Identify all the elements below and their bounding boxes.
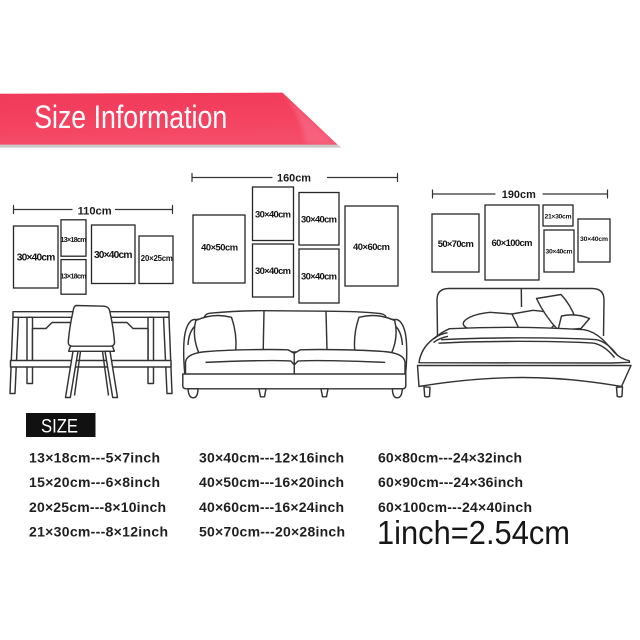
svg-text:30×40cm: 30×40cm [255, 209, 291, 220]
svg-text:30×40cm: 30×40cm [301, 213, 337, 224]
svg-text:13×18cm: 13×18cm [61, 274, 87, 281]
svg-text:40×50cm---16×20inch: 40×50cm---16×20inch [199, 474, 344, 490]
svg-text:SIZE: SIZE [41, 416, 78, 438]
svg-text:190cm: 190cm [502, 189, 536, 201]
svg-text:30×40cm: 30×40cm [17, 253, 56, 264]
svg-text:60×90cm---24×36inch: 60×90cm---24×36inch [378, 474, 523, 490]
svg-text:30×40cm: 30×40cm [546, 249, 573, 256]
svg-text:40×60cm---16×24inch: 40×60cm---16×24inch [199, 499, 344, 515]
svg-text:13×18cm---5×7inch: 13×18cm---5×7inch [29, 450, 160, 466]
svg-text:160cm: 160cm [277, 173, 311, 185]
svg-text:30×40cm: 30×40cm [580, 236, 608, 243]
svg-text:60×100cm: 60×100cm [492, 237, 533, 248]
svg-text:20×25cm---8×10inch: 20×25cm---8×10inch [29, 499, 166, 515]
svg-text:20×25cm: 20×25cm [141, 254, 173, 263]
svg-text:21×30cm: 21×30cm [545, 214, 572, 221]
svg-text:60×80cm---24×32inch: 60×80cm---24×32inch [378, 450, 522, 466]
svg-text:15×20cm---6×8inch: 15×20cm---6×8inch [29, 474, 160, 490]
svg-text:60×100cm---24×40inch: 60×100cm---24×40inch [378, 499, 532, 515]
svg-text:30×40cm: 30×40cm [94, 250, 133, 261]
svg-text:21×30cm---8×12inch: 21×30cm---8×12inch [29, 523, 168, 539]
svg-text:40×60cm: 40×60cm [353, 241, 390, 252]
svg-text:50×70cm---20×28inch: 50×70cm---20×28inch [199, 523, 345, 539]
svg-text:1inch=2.54cm: 1inch=2.54cm [377, 514, 570, 551]
svg-text:40×50cm: 40×50cm [201, 241, 238, 252]
svg-text:13×18cm: 13×18cm [61, 237, 87, 244]
svg-text:110cm: 110cm [78, 206, 112, 218]
svg-text:50×70cm: 50×70cm [438, 238, 474, 249]
svg-text:Size Information: Size Information [34, 99, 227, 135]
svg-text:30×40cm: 30×40cm [301, 270, 337, 281]
svg-text:30×40cm: 30×40cm [255, 265, 291, 276]
svg-text:30×40cm---12×16inch: 30×40cm---12×16inch [199, 450, 344, 466]
